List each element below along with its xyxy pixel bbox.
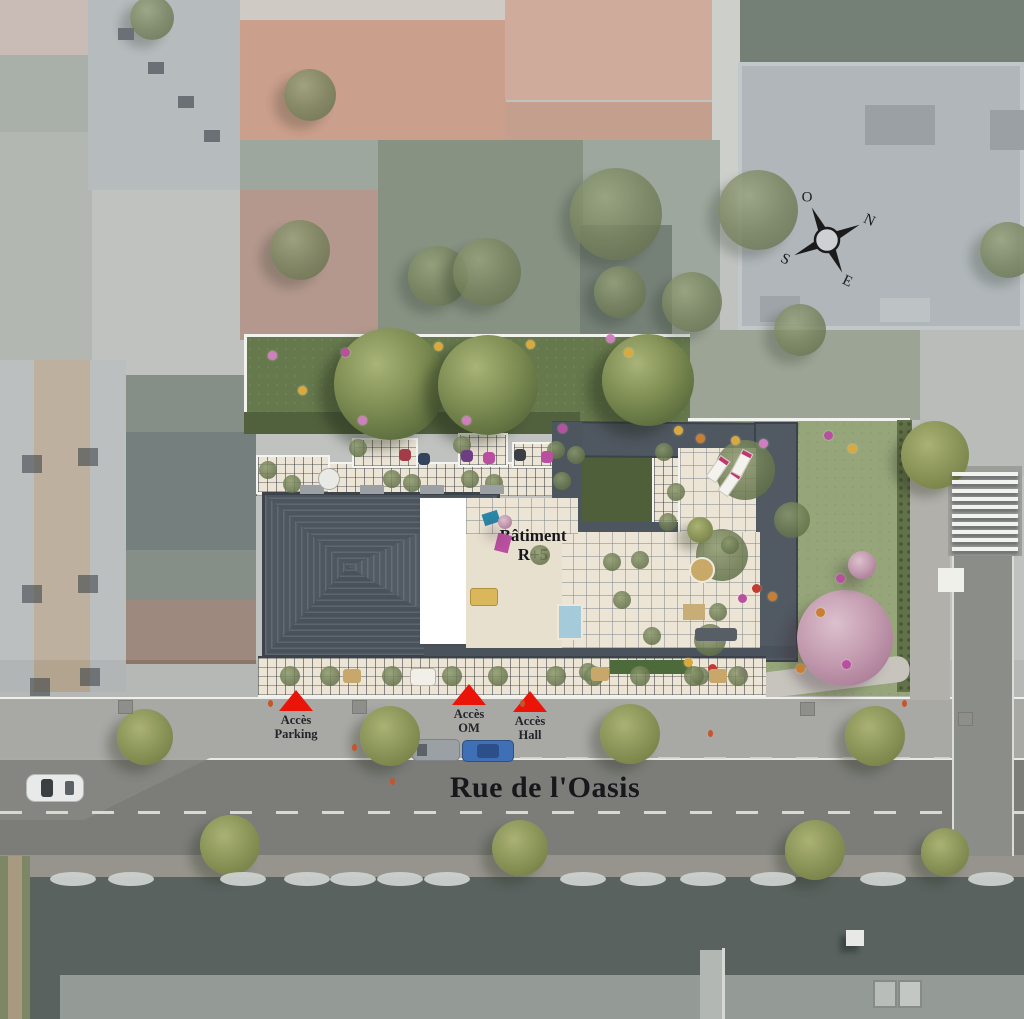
stair-step — [952, 547, 1018, 551]
pedestrian-icon — [520, 700, 525, 707]
dormer-icon — [620, 872, 666, 886]
beanbag-icon — [461, 450, 473, 462]
car-roof — [477, 744, 499, 758]
planter-icon — [461, 470, 479, 488]
flower-icon — [462, 416, 471, 425]
terrace-tree-icon — [728, 666, 748, 686]
tree-icon — [594, 266, 646, 318]
planter-icon — [613, 591, 631, 609]
access-parking-line2: Parking — [251, 728, 341, 742]
skylight-icon — [22, 455, 42, 473]
pool — [557, 604, 583, 640]
access-hall-line1: Accès — [485, 715, 575, 729]
dormer-icon — [680, 872, 726, 886]
skylight — [898, 980, 922, 1008]
tree-icon — [785, 820, 845, 880]
flower-icon — [268, 351, 277, 360]
table-icon — [591, 667, 609, 681]
terrace-tree-icon — [630, 666, 650, 686]
dormer-icon — [750, 872, 796, 886]
flower-icon — [341, 348, 350, 357]
access-triangle-icon — [279, 690, 313, 711]
planter-icon — [259, 461, 277, 479]
tree-icon — [921, 828, 969, 876]
tree-icon — [200, 815, 260, 875]
tree-icon — [602, 334, 694, 426]
access-triangle-icon — [452, 684, 486, 705]
blossom-tree-icon — [848, 551, 876, 579]
table-icon — [343, 669, 361, 683]
utility-box-icon — [118, 700, 133, 714]
car-rear-window — [65, 781, 74, 795]
flower-icon — [558, 424, 567, 433]
terrace-tree-icon — [280, 666, 300, 686]
access-parking-line1: Accès — [251, 714, 341, 728]
stair-step — [952, 497, 1018, 501]
light-well — [420, 498, 466, 644]
blossom-tree-icon — [797, 590, 893, 686]
skylight — [873, 980, 897, 1008]
planter-icon — [721, 536, 739, 554]
tree-icon — [774, 304, 826, 356]
flower-icon — [768, 592, 777, 601]
dormer-icon — [968, 872, 1014, 886]
shrub-icon — [774, 502, 810, 538]
skylight-icon — [80, 668, 100, 686]
chimney — [846, 930, 864, 946]
access-hall-line2: Hall — [485, 729, 575, 743]
planter-icon — [667, 483, 685, 501]
flower-icon — [848, 444, 857, 453]
dormer-icon — [50, 872, 96, 886]
skylight-icon — [78, 448, 98, 466]
terrace-tree-icon — [546, 666, 566, 686]
beanbag-icon — [418, 453, 430, 465]
roof-gap-line — [722, 948, 725, 1019]
terrace-tree-icon — [382, 666, 402, 686]
planter-icon — [553, 472, 571, 490]
flower-icon — [358, 416, 367, 425]
flower-icon — [674, 426, 683, 435]
dormer-icon — [108, 872, 154, 886]
terrace-tree-icon — [687, 517, 713, 543]
stair-step — [952, 480, 1018, 484]
dormer-icon — [148, 62, 164, 74]
planter-icon — [655, 443, 673, 461]
dormer-icon — [330, 872, 376, 886]
terrace-tree-icon — [488, 666, 508, 686]
stair-step — [952, 522, 1018, 526]
stair-step — [952, 538, 1018, 542]
terrace-tree-icon — [442, 666, 462, 686]
sofa-icon — [695, 628, 737, 641]
stair-step — [952, 505, 1018, 509]
beanbag-icon — [514, 449, 526, 461]
dormer-icon — [220, 872, 266, 886]
table-icon — [709, 669, 727, 683]
planter-icon — [349, 439, 367, 457]
flower-icon — [624, 348, 633, 357]
planter-icon — [383, 470, 401, 488]
tree-icon — [117, 709, 173, 765]
planter-icon — [643, 627, 661, 645]
car-windshield — [41, 779, 53, 797]
beanbag-icon — [483, 452, 495, 464]
planter-icon — [530, 545, 550, 565]
compass-south-label: S — [778, 250, 792, 268]
pedestrian-icon — [708, 730, 713, 737]
dormer-icon — [284, 872, 330, 886]
parked-car-blue — [462, 740, 514, 762]
pedestrian-icon — [902, 700, 907, 707]
planter-icon — [709, 603, 727, 621]
dormer-icon — [377, 872, 423, 886]
tree-icon — [662, 272, 722, 332]
compass-east-label: E — [840, 272, 855, 290]
flower-icon — [796, 664, 805, 673]
table-chairs-icon — [318, 468, 340, 490]
flower-icon — [696, 434, 705, 443]
tree-icon — [438, 335, 538, 435]
flower-icon — [752, 584, 761, 593]
beanbag-icon — [399, 449, 411, 461]
stair-step — [952, 489, 1018, 493]
right-road — [952, 556, 1014, 856]
utility-box-icon — [800, 702, 815, 716]
dormer-icon — [118, 28, 134, 40]
beanbag-icon — [541, 451, 553, 463]
tree-icon — [600, 704, 660, 764]
street-name-label: Rue de l'Oasis — [450, 771, 640, 805]
tree-icon — [718, 170, 798, 250]
tree-icon — [270, 220, 330, 280]
table-set-icon — [470, 588, 498, 606]
tree-icon — [334, 328, 446, 440]
planter-icon — [603, 553, 621, 571]
pedestrian-icon — [268, 700, 273, 707]
flower-icon — [434, 342, 443, 351]
access-parking: Accès Parking — [251, 690, 341, 741]
terrace-tree-icon — [320, 666, 340, 686]
tree-icon — [570, 168, 662, 260]
utility-box-icon — [958, 712, 973, 726]
roof-gap-block — [700, 950, 722, 1019]
driving-car-white — [26, 774, 84, 802]
flower-icon — [298, 386, 307, 395]
flower-icon — [816, 608, 825, 617]
planter-icon — [567, 446, 585, 464]
planter-icon — [659, 513, 677, 531]
terrace-tree-icon — [684, 666, 704, 686]
roof-unit-icon — [420, 485, 444, 494]
planter-icon — [403, 474, 421, 492]
dormer-icon — [178, 96, 194, 108]
flower-icon — [836, 574, 845, 583]
utility-box-icon — [352, 700, 367, 714]
planter-icon — [631, 551, 649, 569]
road-center-line — [0, 811, 1024, 814]
van-window — [417, 744, 427, 756]
skylight-icon — [22, 585, 42, 603]
pedestrian-icon — [352, 744, 357, 751]
flower-icon — [759, 439, 768, 448]
flower-icon — [606, 334, 615, 343]
skylight-icon — [30, 678, 50, 696]
compass-north-label: N — [861, 211, 878, 230]
access-hall: Accès Hall — [485, 691, 575, 742]
tree-icon — [845, 706, 905, 766]
dormer-icon — [204, 130, 220, 142]
road-marking — [938, 568, 964, 592]
flower-icon — [738, 594, 747, 603]
access-triangle-icon — [513, 691, 547, 712]
pedestrian-icon — [390, 778, 395, 785]
flower-icon — [731, 436, 740, 445]
planter-icon — [283, 475, 301, 493]
tree-icon — [492, 820, 548, 876]
bottom-path — [8, 856, 22, 1019]
tree-icon — [284, 69, 336, 121]
flower-pot-icon — [498, 515, 512, 529]
skylight-icon — [78, 575, 98, 593]
flower-icon — [824, 431, 833, 440]
site-plan-rendering: N E S O Bâtiment R+5 Accès Parking Accès… — [0, 0, 1024, 1019]
dormer-icon — [860, 872, 906, 886]
dormer-icon — [424, 872, 470, 886]
rug-icon — [683, 604, 705, 620]
tree-icon — [453, 238, 521, 306]
mat-icon — [410, 668, 436, 686]
stair-step — [952, 530, 1018, 534]
roof-unit-icon — [360, 485, 384, 494]
tree-icon — [360, 706, 420, 766]
stair-step — [952, 472, 1018, 476]
roof-unit-icon — [480, 485, 504, 494]
gf-hedge — [610, 660, 692, 674]
stair-step — [952, 514, 1018, 518]
dormer-icon — [560, 872, 606, 886]
tree-icon — [901, 421, 969, 489]
dining-table-icon — [689, 557, 715, 583]
flower-icon — [842, 660, 851, 669]
compass-west-label: O — [802, 189, 813, 205]
flower-icon — [526, 340, 535, 349]
